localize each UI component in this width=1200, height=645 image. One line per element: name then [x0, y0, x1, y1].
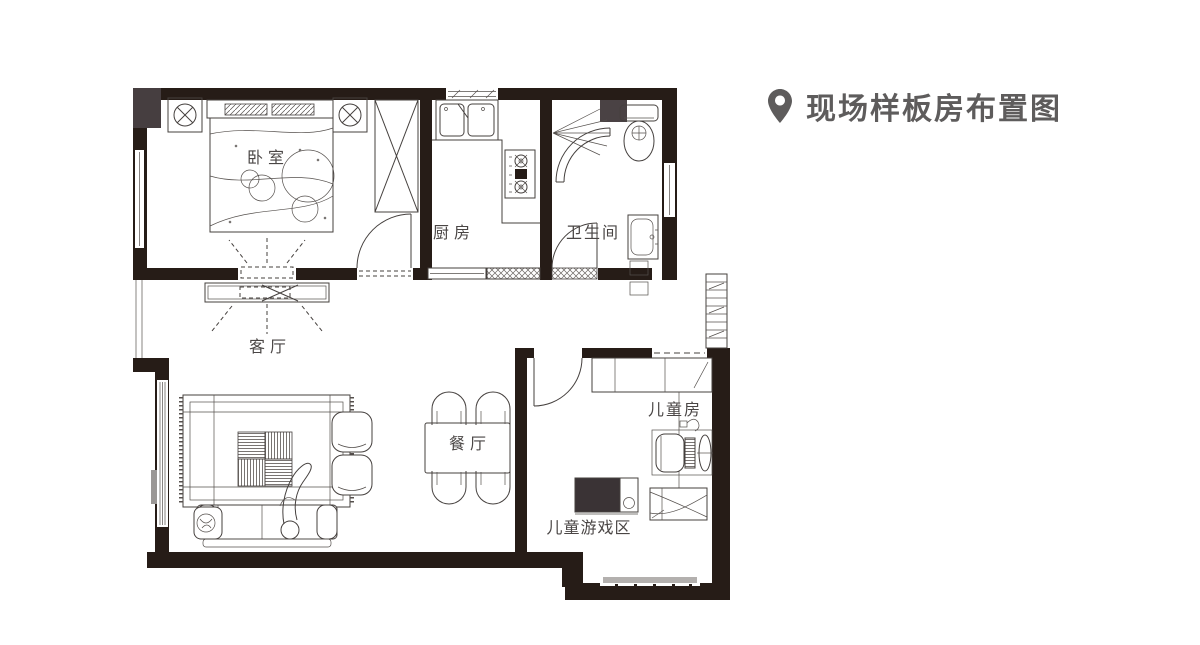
canvas: 现场样板房布置图: [0, 0, 1200, 645]
nightstand-left: [168, 98, 202, 132]
living-room: 客厅: [181, 283, 372, 547]
floor-plan: 卧室 厨房: [0, 0, 1200, 645]
entry: [706, 274, 727, 348]
dining-room-label: 餐厅: [449, 434, 491, 453]
hall-box: [630, 282, 648, 295]
duct-shaft: [600, 100, 627, 122]
dining-chair: [432, 471, 466, 504]
rug: [181, 395, 352, 507]
bedroom-door: [357, 214, 411, 268]
kitchen-sink: [436, 100, 498, 140]
dining-chair: [476, 392, 510, 425]
kitchen-label: 厨房: [433, 223, 475, 242]
armchair: [332, 412, 372, 452]
bedroom-tv: [229, 237, 305, 281]
desk-lamp: [680, 419, 699, 431]
wardrobe: [375, 100, 418, 212]
desk-chair: [656, 434, 684, 472]
play-area-window: [600, 574, 700, 587]
entry-cabinet: [706, 274, 727, 348]
vanity-sink: [628, 215, 658, 275]
bedroom-window: [135, 150, 144, 248]
bedroom-door-sill: [357, 266, 413, 280]
living-room-window: [151, 380, 168, 527]
kitchen-stove: [505, 150, 535, 198]
kids-desk: [652, 419, 713, 475]
bathroom-threshold: [552, 268, 597, 279]
bathroom-label: 卫生间: [566, 223, 620, 242]
tv-console: [205, 283, 329, 334]
sofa-base: [203, 539, 331, 547]
kitchen-sliding-door: [428, 268, 540, 279]
sofa-armrest: [317, 505, 337, 539]
entry-door-sill: [652, 348, 707, 358]
kids-play-area: 儿童游戏区: [546, 478, 638, 537]
bedroom-label: 卧室: [247, 148, 289, 167]
kids-room-label: 儿童房: [648, 400, 702, 419]
kitchen-window: [446, 88, 498, 100]
side-plant: [194, 507, 222, 539]
kids-bed: [650, 488, 707, 520]
curtain-mark: [151, 470, 157, 504]
dining-chair: [476, 471, 510, 504]
kids-closet: [592, 358, 712, 392]
living-room-label: 客厅: [249, 337, 291, 356]
bedroom: 卧室: [168, 98, 418, 281]
doors: [357, 214, 597, 406]
armchair: [332, 455, 372, 495]
rug-center-pattern: [238, 432, 292, 486]
kitchen: 厨房: [432, 100, 540, 242]
bathroom-window: [664, 163, 675, 217]
bathroom: 卫生间: [553, 105, 658, 275]
left-wall-lines: [136, 280, 142, 358]
corner-column: [133, 88, 161, 128]
kids-room-door: [534, 358, 582, 406]
nightstand-right: [333, 98, 367, 132]
dining-chair: [432, 392, 466, 425]
kids-play-area-label: 儿童游戏区: [546, 518, 631, 537]
monitor: [685, 438, 695, 468]
pillow: [225, 104, 267, 115]
dining-room: 餐厅: [425, 392, 510, 504]
play-cabinet: [575, 478, 638, 514]
pillow: [272, 104, 314, 115]
